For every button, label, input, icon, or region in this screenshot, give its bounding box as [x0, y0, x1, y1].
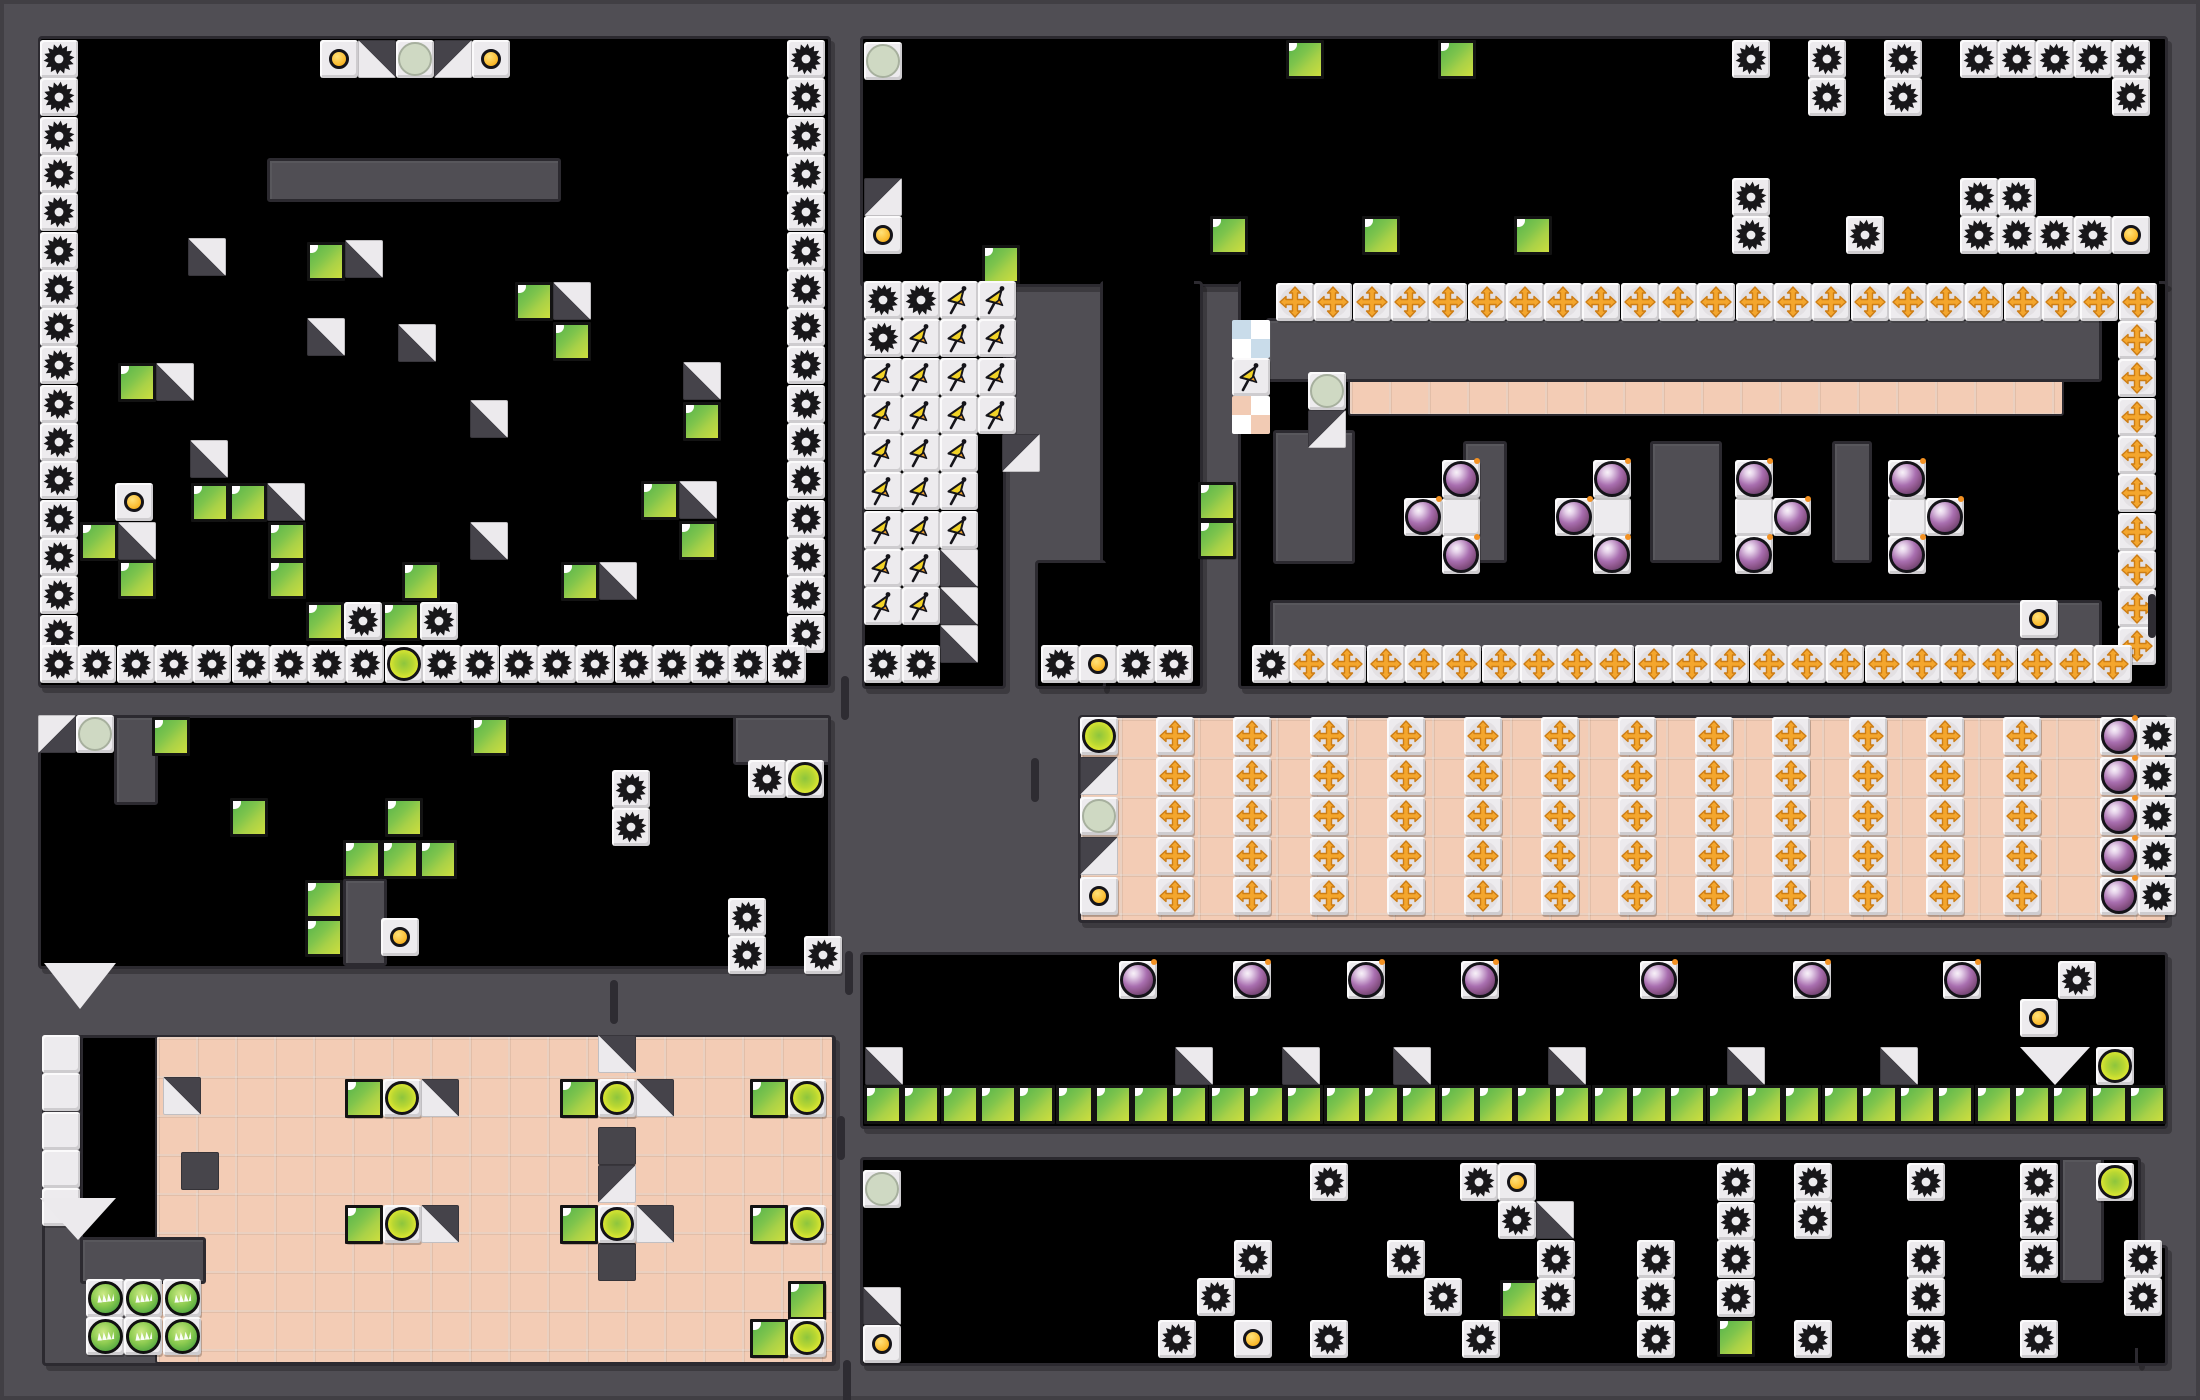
saw-gear-tile[interactable] [420, 602, 458, 640]
gold-cross-tile[interactable] [2094, 645, 2132, 683]
coin-dot-tile[interactable] [1079, 645, 1117, 683]
green-block[interactable] [641, 481, 679, 519]
gold-cross-tile[interactable] [1156, 877, 1194, 915]
gold-cross-tile[interactable] [1772, 757, 1810, 795]
gold-cross-tile[interactable] [1695, 717, 1733, 755]
saw-gear-tile[interactable] [1884, 78, 1922, 116]
coin-dot-tile[interactable] [115, 483, 153, 521]
saw-gear-tile[interactable] [787, 385, 825, 423]
gold-cross-tile[interactable] [2118, 436, 2156, 474]
saw-gear-tile[interactable] [40, 270, 78, 308]
saw-gear-tile[interactable] [2036, 40, 2074, 78]
gold-cross-tile[interactable] [1391, 283, 1429, 321]
coin-dot-tile[interactable] [2112, 216, 2150, 254]
gold-cross-tile[interactable] [2118, 359, 2156, 397]
green-block[interactable] [1362, 1085, 1400, 1123]
green-block[interactable] [191, 483, 229, 521]
saw-gear-tile[interactable] [787, 308, 825, 346]
saw-gear-tile[interactable] [40, 423, 78, 461]
saw-gear-tile[interactable] [1637, 1320, 1675, 1358]
gold-cross-tile[interactable] [1156, 797, 1194, 835]
bomb-tile[interactable] [1773, 498, 1811, 536]
green-block[interactable] [788, 1281, 826, 1319]
green-block[interactable] [1707, 1085, 1745, 1123]
green-block[interactable] [515, 282, 553, 320]
lime-ball-tile[interactable] [598, 1205, 636, 1243]
gold-cross-tile[interactable] [2003, 797, 2041, 835]
green-block[interactable] [1439, 1085, 1477, 1123]
gold-cross-tile[interactable] [2004, 283, 2042, 321]
gold-cross-tile[interactable] [1314, 283, 1352, 321]
coin-dot-tile[interactable] [2020, 600, 2058, 638]
saw-gear-tile[interactable] [1960, 40, 1998, 78]
bomb-tile[interactable] [2100, 717, 2138, 755]
saw-gear-tile[interactable] [2020, 1320, 2058, 1358]
green-block[interactable] [118, 560, 156, 598]
green-block[interactable] [1198, 520, 1236, 558]
saw-gear-tile[interactable] [787, 78, 825, 116]
saw-gear-tile[interactable] [1808, 78, 1846, 116]
player-circle-tile[interactable] [863, 1170, 901, 1208]
saw-gear-tile[interactable] [40, 576, 78, 614]
saw-gear-tile[interactable] [423, 645, 461, 683]
saw-gear-tile[interactable] [1907, 1278, 1945, 1316]
gold-cross-tile[interactable] [2056, 645, 2094, 683]
gold-cross-tile[interactable] [1618, 877, 1656, 915]
gold-cross-tile[interactable] [1541, 717, 1579, 755]
flag-tile[interactable] [864, 396, 902, 434]
gold-cross-tile[interactable] [1926, 837, 1964, 875]
green-gem-ball[interactable] [124, 1279, 162, 1317]
gold-cross-tile[interactable] [2003, 837, 2041, 875]
green-block[interactable] [683, 402, 721, 440]
bomb-tile[interactable] [2100, 797, 2138, 835]
saw-gear-tile[interactable] [729, 645, 767, 683]
gold-cross-tile[interactable] [1541, 757, 1579, 795]
green-block[interactable] [268, 560, 306, 598]
saw-gear-tile[interactable] [40, 117, 78, 155]
gold-cross-tile[interactable] [1482, 645, 1520, 683]
green-block[interactable] [864, 1085, 902, 1123]
gold-cross-tile[interactable] [1926, 717, 1964, 755]
saw-gear-tile[interactable] [1117, 645, 1155, 683]
green-gem-ball[interactable] [163, 1279, 201, 1317]
saw-gear-tile[interactable] [1794, 1320, 1832, 1358]
saw-gear-tile[interactable] [500, 645, 538, 683]
lime-ball-tile[interactable] [788, 1319, 826, 1357]
gold-cross-tile[interactable] [1618, 757, 1656, 795]
saw-gear-tile[interactable] [1846, 216, 1884, 254]
gold-cross-tile[interactable] [1849, 837, 1887, 875]
gold-cross-tile[interactable] [1276, 283, 1314, 321]
gold-cross-tile[interactable] [2042, 283, 2080, 321]
gold-cross-tile[interactable] [1310, 797, 1348, 835]
saw-gear-tile[interactable] [1424, 1278, 1462, 1316]
coin-dot-tile[interactable] [864, 216, 902, 254]
gold-cross-tile[interactable] [1659, 283, 1697, 321]
green-block[interactable] [1975, 1085, 2013, 1123]
flag-tile[interactable] [940, 319, 978, 357]
green-block[interactable] [1514, 216, 1552, 254]
gold-cross-tile[interactable] [1774, 283, 1812, 321]
bomb-tile[interactable] [1555, 498, 1593, 536]
bomb-tile[interactable] [1735, 460, 1773, 498]
saw-gear-tile[interactable] [2124, 1240, 2162, 1278]
gold-cross-tile[interactable] [1387, 837, 1425, 875]
saw-gear-tile[interactable] [1884, 40, 1922, 78]
saw-gear-tile[interactable] [787, 232, 825, 270]
gold-cross-tile[interactable] [1233, 837, 1271, 875]
green-block[interactable] [1745, 1085, 1783, 1123]
gold-cross-tile[interactable] [1233, 877, 1271, 915]
saw-gear-tile[interactable] [691, 645, 729, 683]
gold-cross-tile[interactable] [1405, 645, 1443, 683]
gold-cross-tile[interactable] [1788, 645, 1826, 683]
bomb-tile[interactable] [1461, 961, 1499, 999]
saw-gear-tile[interactable] [787, 155, 825, 193]
saw-gear-tile[interactable] [1041, 645, 1079, 683]
gold-cross-tile[interactable] [1673, 645, 1711, 683]
flag-tile[interactable] [902, 358, 940, 396]
gold-cross-tile[interactable] [1697, 283, 1735, 321]
coin-dot-tile[interactable] [1234, 1320, 1272, 1358]
gold-cross-tile[interactable] [1541, 797, 1579, 835]
flag-tile[interactable] [940, 281, 978, 319]
gold-cross-tile[interactable] [1621, 283, 1659, 321]
gold-cross-tile[interactable] [1233, 757, 1271, 795]
gold-cross-tile[interactable] [1233, 717, 1271, 755]
saw-gear-tile[interactable] [40, 645, 78, 683]
flag-tile[interactable] [940, 434, 978, 472]
flag-tile[interactable] [864, 549, 902, 587]
green-gem-ball[interactable] [163, 1317, 201, 1355]
saw-gear-tile[interactable] [232, 645, 270, 683]
flag-tile[interactable] [864, 587, 902, 625]
green-block[interactable] [1936, 1085, 1974, 1123]
gold-cross-tile[interactable] [1464, 797, 1502, 835]
gold-cross-tile[interactable] [1849, 797, 1887, 835]
green-block[interactable] [1198, 482, 1236, 520]
green-block[interactable] [385, 798, 423, 836]
green-block[interactable] [750, 1319, 788, 1357]
green-block[interactable] [305, 880, 343, 918]
saw-gear-tile[interactable] [40, 538, 78, 576]
gold-cross-tile[interactable] [1826, 645, 1864, 683]
gold-cross-tile[interactable] [2003, 757, 2041, 795]
gold-cross-tile[interactable] [1695, 877, 1733, 915]
gold-cross-tile[interactable] [1387, 877, 1425, 915]
green-block[interactable] [1094, 1085, 1132, 1123]
saw-gear-tile[interactable] [1732, 178, 1770, 216]
gold-cross-tile[interactable] [1541, 877, 1579, 915]
green-block[interactable] [345, 1205, 383, 1243]
gold-cross-tile[interactable] [1310, 717, 1348, 755]
bomb-tile[interactable] [2100, 877, 2138, 915]
green-block[interactable] [1553, 1085, 1591, 1123]
flag-tile[interactable] [940, 358, 978, 396]
saw-gear-tile[interactable] [787, 538, 825, 576]
saw-gear-tile[interactable] [40, 308, 78, 346]
saw-gear-tile[interactable] [2112, 40, 2150, 78]
saw-gear-tile[interactable] [1637, 1278, 1675, 1316]
gold-cross-tile[interactable] [2118, 321, 2156, 359]
saw-gear-tile[interactable] [787, 346, 825, 384]
green-block[interactable] [1209, 1085, 1247, 1123]
bomb-tile[interactable] [2100, 837, 2138, 875]
gold-cross-tile[interactable] [1926, 797, 1964, 835]
green-block[interactable] [750, 1205, 788, 1243]
gold-cross-tile[interactable] [2003, 717, 2041, 755]
gold-cross-tile[interactable] [1618, 717, 1656, 755]
saw-gear-tile[interactable] [902, 281, 940, 319]
lime-ball-tile[interactable] [2096, 1163, 2134, 1201]
green-block[interactable] [381, 840, 419, 878]
green-block[interactable] [1362, 216, 1400, 254]
saw-gear-tile[interactable] [864, 645, 902, 683]
green-block[interactable] [1860, 1085, 1898, 1123]
coin-dot-tile[interactable] [1080, 877, 1118, 915]
saw-gear-tile[interactable] [1234, 1240, 1272, 1278]
gold-cross-tile[interactable] [2118, 474, 2156, 512]
saw-gear-tile[interactable] [1907, 1320, 1945, 1358]
gold-cross-tile[interactable] [1464, 877, 1502, 915]
saw-gear-tile[interactable] [2138, 717, 2176, 755]
bomb-tile[interactable] [1926, 498, 1964, 536]
bomb-tile[interactable] [1943, 961, 1981, 999]
gold-cross-tile[interactable] [1520, 645, 1558, 683]
saw-gear-tile[interactable] [1537, 1278, 1575, 1316]
lime-ball-tile[interactable] [598, 1079, 636, 1117]
saw-gear-tile[interactable] [155, 645, 193, 683]
gold-cross-tile[interactable] [1979, 645, 2017, 683]
saw-gear-tile[interactable] [40, 232, 78, 270]
saw-gear-tile[interactable] [1387, 1240, 1425, 1278]
lime-ball-tile[interactable] [385, 645, 423, 683]
saw-gear-tile[interactable] [40, 155, 78, 193]
saw-gear-tile[interactable] [787, 461, 825, 499]
saw-gear-tile[interactable] [902, 645, 940, 683]
green-block[interactable] [382, 602, 420, 640]
lime-ball-tile[interactable] [383, 1079, 421, 1117]
green-block[interactable] [560, 1079, 598, 1117]
green-block[interactable] [750, 1079, 788, 1117]
saw-gear-tile[interactable] [1717, 1240, 1755, 1278]
green-gem-ball[interactable] [124, 1317, 162, 1355]
flag-tile[interactable] [902, 511, 940, 549]
green-block[interactable] [553, 322, 591, 360]
green-block[interactable] [982, 245, 1020, 283]
gold-cross-tile[interactable] [1506, 283, 1544, 321]
flag-tile[interactable] [940, 472, 978, 510]
saw-gear-tile[interactable] [1794, 1201, 1832, 1239]
saw-gear-tile[interactable] [787, 576, 825, 614]
saw-gear-tile[interactable] [270, 645, 308, 683]
green-block[interactable] [2090, 1085, 2128, 1123]
saw-gear-tile[interactable] [2138, 837, 2176, 875]
bomb-tile[interactable] [1404, 498, 1442, 536]
player-circle-tile[interactable] [1080, 797, 1118, 835]
gold-cross-tile[interactable] [1772, 877, 1810, 915]
green-block[interactable] [979, 1085, 1017, 1123]
green-block[interactable] [471, 717, 509, 755]
green-block[interactable] [1592, 1085, 1630, 1123]
saw-gear-tile[interactable] [787, 500, 825, 538]
saw-gear-tile[interactable] [1732, 40, 1770, 78]
bomb-tile[interactable] [1347, 961, 1385, 999]
green-block[interactable] [305, 918, 343, 956]
saw-gear-tile[interactable] [728, 936, 766, 974]
saw-gear-tile[interactable] [2036, 216, 2074, 254]
saw-gear-tile[interactable] [538, 645, 576, 683]
bomb-tile[interactable] [1119, 961, 1157, 999]
saw-gear-tile[interactable] [615, 645, 653, 683]
flag-tile[interactable] [978, 281, 1016, 319]
gold-cross-tile[interactable] [1849, 757, 1887, 795]
green-block[interactable] [229, 483, 267, 521]
saw-gear-tile[interactable] [40, 500, 78, 538]
saw-gear-tile[interactable] [308, 645, 346, 683]
green-block[interactable] [1717, 1318, 1755, 1356]
gold-cross-tile[interactable] [1635, 645, 1673, 683]
saw-gear-tile[interactable] [2112, 78, 2150, 116]
gold-cross-tile[interactable] [1290, 645, 1328, 683]
saw-gear-tile[interactable] [1907, 1163, 1945, 1201]
saw-gear-tile[interactable] [40, 40, 78, 78]
flag-tile[interactable] [940, 396, 978, 434]
gold-cross-tile[interactable] [1941, 645, 1979, 683]
flag-tile[interactable] [902, 396, 940, 434]
saw-gear-tile[interactable] [1155, 645, 1193, 683]
green-gem-ball[interactable] [86, 1317, 124, 1355]
gold-cross-tile[interactable] [1618, 837, 1656, 875]
saw-gear-tile[interactable] [78, 645, 116, 683]
green-block[interactable] [2051, 1085, 2089, 1123]
green-block[interactable] [679, 521, 717, 559]
gold-cross-tile[interactable] [1387, 717, 1425, 755]
saw-gear-tile[interactable] [1462, 1320, 1500, 1358]
gold-cross-tile[interactable] [1596, 645, 1634, 683]
green-block[interactable] [343, 840, 381, 878]
saw-gear-tile[interactable] [346, 645, 384, 683]
green-block[interactable] [1477, 1085, 1515, 1123]
green-block[interactable] [307, 242, 345, 280]
gold-cross-tile[interactable] [1903, 645, 1941, 683]
lime-ball-tile[interactable] [2096, 1047, 2134, 1085]
saw-gear-tile[interactable] [787, 270, 825, 308]
green-block[interactable] [561, 562, 599, 600]
saw-gear-tile[interactable] [1310, 1163, 1348, 1201]
saw-gear-tile[interactable] [787, 423, 825, 461]
gold-cross-tile[interactable] [1544, 283, 1582, 321]
bomb-tile[interactable] [1442, 536, 1480, 574]
gold-cross-tile[interactable] [1464, 837, 1502, 875]
saw-gear-tile[interactable] [787, 193, 825, 231]
green-block[interactable] [560, 1205, 598, 1243]
green-block[interactable] [1500, 1280, 1538, 1318]
saw-gear-tile[interactable] [193, 645, 231, 683]
gold-cross-tile[interactable] [1156, 837, 1194, 875]
green-block[interactable] [80, 522, 118, 560]
saw-gear-tile[interactable] [1637, 1240, 1675, 1278]
green-block[interactable] [2128, 1085, 2166, 1123]
gold-cross-tile[interactable] [1695, 797, 1733, 835]
flag-tile[interactable] [902, 472, 940, 510]
player-circle-tile[interactable] [1308, 372, 1346, 410]
green-block[interactable] [1285, 1085, 1323, 1123]
saw-gear-tile[interactable] [728, 898, 766, 936]
saw-gear-tile[interactable] [1717, 1163, 1755, 1201]
gold-cross-tile[interactable] [1736, 283, 1774, 321]
saw-gear-tile[interactable] [117, 645, 155, 683]
gold-cross-tile[interactable] [1618, 797, 1656, 835]
coin-dot-tile[interactable] [320, 40, 358, 78]
gold-cross-tile[interactable] [1926, 877, 1964, 915]
gold-cross-tile[interactable] [2119, 283, 2157, 321]
gold-cross-tile[interactable] [1695, 757, 1733, 795]
saw-gear-tile[interactable] [40, 346, 78, 384]
saw-gear-tile[interactable] [2124, 1278, 2162, 1316]
coin-dot-tile[interactable] [2020, 999, 2058, 1037]
gold-cross-tile[interactable] [1695, 837, 1733, 875]
green-block[interactable] [1324, 1085, 1362, 1123]
lime-ball-tile[interactable] [788, 1205, 826, 1243]
saw-gear-tile[interactable] [804, 936, 842, 974]
bomb-tile[interactable] [1793, 961, 1831, 999]
saw-gear-tile[interactable] [1717, 1202, 1755, 1240]
lime-ball-tile[interactable] [788, 1079, 826, 1117]
gold-cross-tile[interactable] [1156, 717, 1194, 755]
gold-cross-tile[interactable] [1582, 283, 1620, 321]
saw-gear-tile[interactable] [1158, 1320, 1196, 1358]
player-circle-tile[interactable] [396, 40, 434, 78]
gold-cross-tile[interactable] [1156, 757, 1194, 795]
green-block[interactable] [419, 840, 457, 878]
flag-tile[interactable] [902, 587, 940, 625]
gold-cross-tile[interactable] [1541, 837, 1579, 875]
green-block[interactable] [118, 363, 156, 401]
saw-gear-tile[interactable] [768, 645, 806, 683]
green-block[interactable] [2013, 1085, 2051, 1123]
saw-gear-tile[interactable] [1717, 1279, 1755, 1317]
flag-tile[interactable] [902, 549, 940, 587]
gold-cross-tile[interactable] [1310, 757, 1348, 795]
green-block[interactable] [345, 1079, 383, 1117]
saw-gear-tile[interactable] [1960, 178, 1998, 216]
green-block[interactable] [1515, 1085, 1553, 1123]
bomb-tile[interactable] [2100, 757, 2138, 795]
saw-gear-tile[interactable] [1907, 1240, 1945, 1278]
flag-tile[interactable] [978, 358, 1016, 396]
saw-gear-tile[interactable] [461, 645, 499, 683]
bomb-tile[interactable] [1888, 460, 1926, 498]
bomb-tile[interactable] [1233, 961, 1271, 999]
gold-cross-tile[interactable] [1711, 645, 1749, 683]
green-block[interactable] [152, 717, 190, 755]
gold-cross-tile[interactable] [1772, 797, 1810, 835]
saw-gear-tile[interactable] [1998, 40, 2036, 78]
saw-gear-tile[interactable] [344, 602, 382, 640]
gold-cross-tile[interactable] [1558, 645, 1596, 683]
saw-gear-tile[interactable] [1537, 1240, 1575, 1278]
green-block[interactable] [1400, 1085, 1438, 1123]
saw-gear-tile[interactable] [864, 281, 902, 319]
saw-gear-tile[interactable] [2020, 1240, 2058, 1278]
bomb-tile[interactable] [1735, 536, 1773, 574]
flag-tile[interactable] [978, 319, 1016, 357]
gold-cross-tile[interactable] [1772, 717, 1810, 755]
gold-cross-tile[interactable] [1926, 757, 1964, 795]
green-block[interactable] [1170, 1085, 1208, 1123]
